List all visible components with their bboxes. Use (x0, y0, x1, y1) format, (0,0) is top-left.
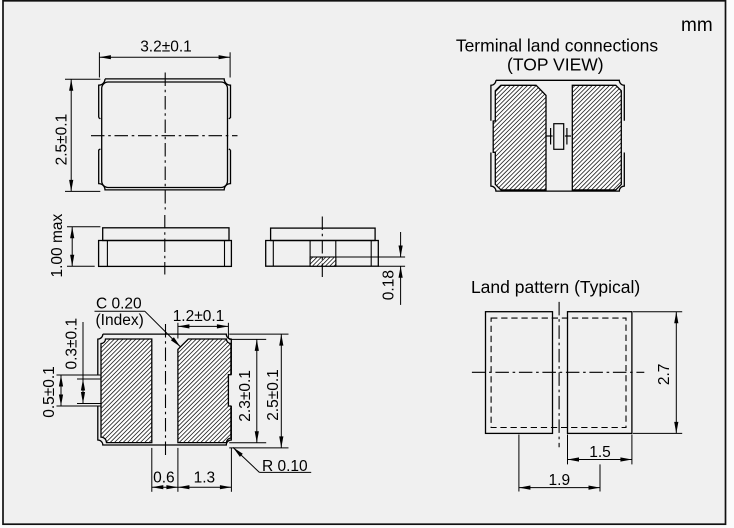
svg-text:0.5±0.1: 0.5±0.1 (41, 366, 58, 418)
svg-text:Land pattern (Typical): Land pattern (Typical) (471, 277, 640, 297)
svg-text:3.2±0.1: 3.2±0.1 (140, 39, 192, 56)
svg-text:2.3±0.1: 2.3±0.1 (237, 370, 254, 422)
svg-text:(TOP VIEW): (TOP VIEW) (507, 54, 604, 74)
svg-text:2.5±0.1: 2.5±0.1 (265, 369, 282, 421)
svg-text:C 0.20: C 0.20 (96, 295, 142, 312)
svg-text:1.2±0.1: 1.2±0.1 (173, 308, 225, 325)
svg-text:mm: mm (681, 15, 713, 36)
svg-text:1.5: 1.5 (589, 444, 611, 461)
svg-text:1.9: 1.9 (549, 472, 571, 489)
svg-text:2.5±0.1: 2.5±0.1 (54, 114, 71, 166)
svg-text:1.00 max: 1.00 max (49, 213, 66, 277)
svg-text:2.7: 2.7 (656, 364, 673, 386)
svg-text:0.3±0.1: 0.3±0.1 (63, 318, 80, 370)
svg-text:0.18: 0.18 (380, 270, 397, 300)
svg-text:1.3: 1.3 (194, 470, 216, 487)
svg-text:Terminal land connections: Terminal land connections (456, 35, 659, 55)
svg-text:0.6: 0.6 (153, 470, 175, 487)
svg-text:(Index): (Index) (96, 312, 144, 329)
